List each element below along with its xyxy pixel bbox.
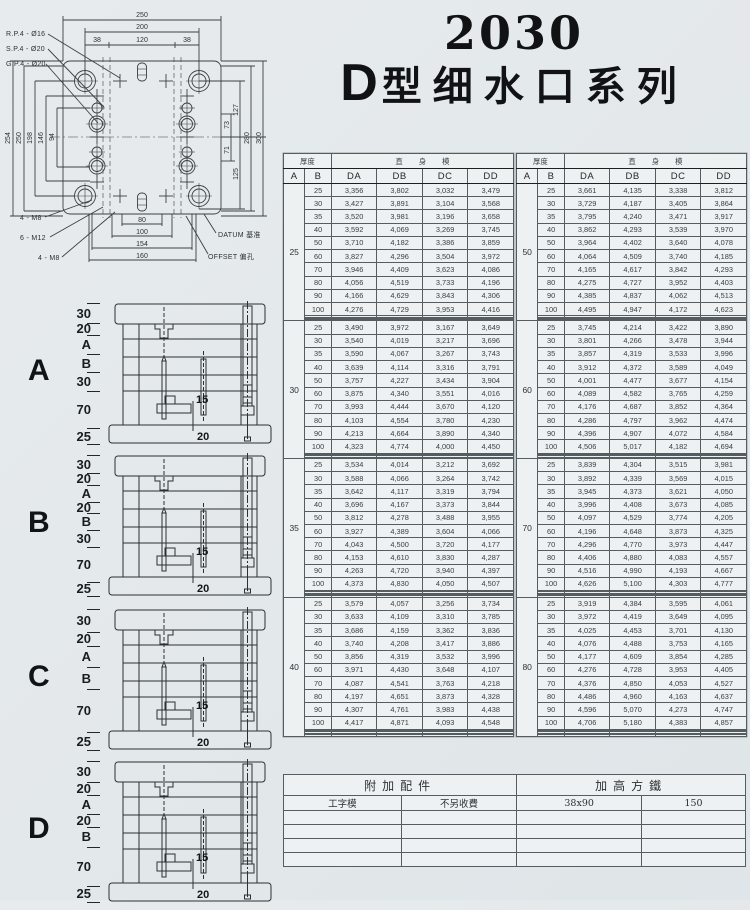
spec-cell xyxy=(284,811,402,825)
spec-cell: 3,515 xyxy=(655,458,701,471)
layer-dim-label: 30 xyxy=(56,530,100,547)
spec-cell: 4,286 xyxy=(564,413,610,426)
spec-cell: 4,474 xyxy=(701,413,747,426)
spec-cell: 3,745 xyxy=(468,223,514,236)
spec-cell: 3,319 xyxy=(422,485,468,498)
spec-cell: 4,319 xyxy=(377,650,423,663)
spec-cell: 4,056 xyxy=(331,276,377,289)
layer-dim-label: 20 xyxy=(56,473,100,484)
spec-cell: 3,972 xyxy=(377,321,423,334)
spec-cell: 3,167 xyxy=(422,321,468,334)
spec-cell: 3,589 xyxy=(655,361,701,374)
spec-cell: 3,639 xyxy=(331,361,377,374)
spec-cell: 4,066 xyxy=(377,472,423,485)
spec-cell: 3,904 xyxy=(468,374,514,387)
layer-dim-label: 70 xyxy=(56,391,100,428)
spec-cell: 3,532 xyxy=(422,650,468,663)
thickness-a-value: 40 xyxy=(284,597,305,736)
spec-cell: 40 xyxy=(305,223,331,236)
spec-cell: 4,727 xyxy=(610,276,656,289)
spec-cell: 100 xyxy=(538,716,564,729)
spec-cell: 4,196 xyxy=(564,524,610,537)
layer-dim-label: B xyxy=(56,827,100,847)
layer-dims: 3020AB307025 xyxy=(56,304,100,444)
spec-row: 503,8564,3193,5323,996 xyxy=(284,650,514,663)
inner-dim-15: 15 xyxy=(196,700,208,712)
spec-cell: 90 xyxy=(538,564,564,577)
spec-cell: 4,208 xyxy=(377,637,423,650)
spec-cell: 4,417 xyxy=(331,716,377,729)
spec-row: 604,0894,5823,7654,259 xyxy=(517,387,747,400)
spec-row: 403,6964,1673,3733,844 xyxy=(284,498,514,511)
spec-cell: 25 xyxy=(305,184,331,197)
spec-cell xyxy=(401,811,517,825)
accessory-value-row: 工字模不另收費38x90150 xyxy=(284,796,746,811)
spec-row: 1004,3734,8304,0504,507 xyxy=(284,577,514,590)
spec-cell: 4,373 xyxy=(610,485,656,498)
spec-table-left: 厚度直身模ABDADBDCDD25253,3563,8023,0323,4793… xyxy=(283,153,514,737)
layer-dim-label: 25 xyxy=(56,582,100,596)
spec-cell: 40 xyxy=(538,637,564,650)
spec-cell: 3,981 xyxy=(377,210,423,223)
spec-cell: 4,408 xyxy=(610,498,656,511)
dim-127: 127 xyxy=(233,104,240,116)
spec-row: 353,7954,2403,4713,917 xyxy=(517,210,747,223)
spec-cell: 3,972 xyxy=(564,610,610,623)
spec-cell: 4,340 xyxy=(468,427,514,440)
spec-cell: 70 xyxy=(305,263,331,276)
spec-cell: 4,049 xyxy=(701,361,747,374)
spec-cell: 3,791 xyxy=(468,361,514,374)
spec-cell: 3,588 xyxy=(331,472,377,485)
spec-cell: 3,551 xyxy=(422,387,468,400)
spec-cell: 3,568 xyxy=(468,197,514,210)
spec-cell: 4,176 xyxy=(564,400,610,413)
spec-cell: 4,293 xyxy=(701,263,747,276)
spec-cell: 3,196 xyxy=(422,210,468,223)
spec-row: 904,1664,6293,8434,306 xyxy=(284,289,514,302)
spec-row: 353,5203,9813,1963,658 xyxy=(284,210,514,223)
spec-cell: 3,785 xyxy=(468,610,514,623)
spec-cell: 3,886 xyxy=(468,637,514,650)
series-chinese-name: 型细水口系列 xyxy=(382,65,688,109)
spec-cell: 3,774 xyxy=(655,511,701,524)
spec-row: 703,9934,4443,6704,120 xyxy=(284,400,514,413)
dim-250-v: 250 xyxy=(16,132,23,144)
spec-table-right-wrap: 厚度直身模ABDADBDCDD50253,6614,1353,3383,8123… xyxy=(516,153,747,737)
thickness-header: 厚度 xyxy=(284,154,332,169)
spec-row: 1004,2764,7293,9534,416 xyxy=(284,302,514,315)
spec-cell xyxy=(564,735,610,737)
spec-cell: 4,276 xyxy=(331,302,377,315)
spec-cell: 100 xyxy=(538,440,564,453)
spec-cell: 4,166 xyxy=(331,289,377,302)
layer-dim-label: 20 xyxy=(56,814,100,827)
accessory-table: 附加配件加高方鐵工字模不另收費38x90150 xyxy=(283,774,746,867)
plate-drawing-svg: 250 200 38 120 38 254 250 198 146 94 73 … xyxy=(0,4,283,272)
spec-cell: 3,973 xyxy=(655,538,701,551)
spec-cell xyxy=(655,735,701,737)
spec-cell: 4,720 xyxy=(377,564,423,577)
spec-cell: 4,609 xyxy=(610,650,656,663)
spec-cell: 4,097 xyxy=(564,511,610,524)
spec-cell: 4,240 xyxy=(610,210,656,223)
spec-row: 80253,9194,3843,5954,061 xyxy=(517,597,747,610)
spec-cell: DD xyxy=(701,169,747,184)
spec-cell: 3,780 xyxy=(422,413,468,426)
inner-dim-20: 20 xyxy=(197,889,209,901)
spec-cell: 4,278 xyxy=(377,511,423,524)
spec-cell: 30 xyxy=(538,334,564,347)
inner-dim-20: 20 xyxy=(197,583,209,595)
spec-cell: DB xyxy=(377,169,423,184)
spec-row: 503,9644,4023,6404,078 xyxy=(517,236,747,249)
layer-dim-label: 30 xyxy=(56,372,100,391)
plate-top-view-drawing: 250 200 38 120 38 254 250 198 146 94 73 … xyxy=(0,4,283,272)
spec-row: 303,5884,0663,2643,742 xyxy=(284,472,514,485)
dim-80: 80 xyxy=(138,217,146,224)
spec-cell: 3,104 xyxy=(422,197,468,210)
mold-drawing-holder: 15 20 xyxy=(102,759,278,905)
bolt-label-m8b: 4 - M8 xyxy=(38,255,60,262)
bolt-label-m8a: 4 - M8 xyxy=(20,215,42,222)
spec-cell: 4,541 xyxy=(377,676,423,689)
spec-cell: 3,490 xyxy=(331,321,377,334)
spec-cell: 4,548 xyxy=(468,716,514,729)
spec-cell: 4,409 xyxy=(377,263,423,276)
layer-dim-label: 70 xyxy=(56,547,100,581)
layer-dim-label: 25 xyxy=(56,732,100,750)
spec-row: 70253,8394,3043,5153,981 xyxy=(517,458,747,471)
spec-cell: 4,154 xyxy=(701,374,747,387)
thickness-a-value: 70 xyxy=(517,458,538,597)
spec-cell: 4,729 xyxy=(377,302,423,315)
spec-header-row: 厚度直身模 xyxy=(517,154,747,169)
spec-cell: 3,604 xyxy=(422,524,468,537)
spec-cell: 4,025 xyxy=(564,624,610,637)
spec-cell: 3,802 xyxy=(377,184,423,197)
spec-row: 804,1034,5543,7804,230 xyxy=(284,413,514,426)
spec-cell: 5,100 xyxy=(610,577,656,590)
datum-label: DATUM 基准 xyxy=(218,230,261,239)
spec-cell: 3,801 xyxy=(564,334,610,347)
spec-cell xyxy=(468,735,514,737)
spec-cell: 3,892 xyxy=(564,472,610,485)
spec-cell: 4,285 xyxy=(701,650,747,663)
spec-row: 303,9724,4193,6494,095 xyxy=(517,610,747,623)
spec-cell: 3,945 xyxy=(564,485,610,498)
spec-cell: 3,996 xyxy=(701,347,747,360)
layer-dim-label: 70 xyxy=(56,689,100,732)
layer-dim-label: B xyxy=(56,667,100,689)
spec-row: 404,0764,4883,7534,165 xyxy=(517,637,747,650)
straight-mold-header: 直身模 xyxy=(564,154,746,169)
spec-cell: 3,720 xyxy=(422,538,468,551)
spec-cell: 4,797 xyxy=(610,413,656,426)
accessory-header-row: 附加配件加高方鐵 xyxy=(284,775,746,796)
spec-cell xyxy=(642,811,746,825)
spec-cell: 3,633 xyxy=(331,610,377,623)
spec-cell: 4,447 xyxy=(701,538,747,551)
spec-cell: 4,163 xyxy=(655,690,701,703)
spec-cell: 4,193 xyxy=(655,564,701,577)
spec-cell: 30 xyxy=(538,610,564,623)
spec-cell: 30 xyxy=(305,334,331,347)
spec-cell xyxy=(642,839,746,853)
spec-cell: 100 xyxy=(305,440,331,453)
spec-cell: 4,273 xyxy=(655,703,701,716)
spec-cell: 工字模 xyxy=(284,796,402,811)
spec-cell: 80 xyxy=(305,551,331,564)
inner-dim-15: 15 xyxy=(196,394,208,406)
spec-cell: 40 xyxy=(538,498,564,511)
spec-row: 303,8924,3393,5694,015 xyxy=(517,472,747,485)
spec-row: 504,0014,4773,6774,154 xyxy=(517,374,747,387)
spec-row: 354,0254,4533,7014,130 xyxy=(517,624,747,637)
spec-cell: 4,187 xyxy=(610,197,656,210)
spec-row: 904,5965,0704,2734,747 xyxy=(517,703,747,716)
spec-cell: 3,765 xyxy=(655,387,701,400)
spec-cell: 3,212 xyxy=(422,458,468,471)
spec-cell: 80 xyxy=(538,690,564,703)
spec-cell: 3,310 xyxy=(422,610,468,623)
thickness-a-value: 30 xyxy=(284,321,305,458)
spec-cell: 4,135 xyxy=(610,184,656,197)
mold-cross-section-drawing: 15 20 xyxy=(102,301,278,447)
spec-cell: 3,478 xyxy=(655,334,701,347)
spec-cell: 38x90 xyxy=(517,796,642,811)
spec-cell: 4,069 xyxy=(377,223,423,236)
spec-row: 704,2964,7703,9734,447 xyxy=(517,538,747,551)
spec-cell: 3,812 xyxy=(331,511,377,524)
spec-cell xyxy=(642,825,746,839)
spec-cell: 3,742 xyxy=(468,472,514,485)
dim-100: 100 xyxy=(136,229,148,236)
spec-row: 1004,4954,9474,1724,623 xyxy=(517,302,747,315)
spec-cell: 35 xyxy=(538,624,564,637)
dim-94: 94 xyxy=(49,133,56,141)
spec-cell: 4,509 xyxy=(610,250,656,263)
spec-cell: B xyxy=(538,169,564,184)
type-letter: B xyxy=(28,506,50,540)
spec-cell: 30 xyxy=(538,197,564,210)
spec-cell xyxy=(377,735,423,737)
spec-cell: 3,338 xyxy=(655,184,701,197)
spec-row: 804,1974,6513,8734,328 xyxy=(284,690,514,703)
spec-cell: 70 xyxy=(305,400,331,413)
spec-cell: 3,917 xyxy=(701,210,747,223)
spec-row: 303,4273,8913,1043,568 xyxy=(284,197,514,210)
spec-row: 504,0974,5293,7744,205 xyxy=(517,511,747,524)
spec-cell: 3,812 xyxy=(701,184,747,197)
spec-cell: 100 xyxy=(305,577,331,590)
thickness-header: 厚度 xyxy=(517,154,565,169)
spec-cell: 3,763 xyxy=(422,676,468,689)
spec-cell: 100 xyxy=(305,716,331,729)
spec-cell xyxy=(305,735,331,737)
spec-cell: 3,946 xyxy=(331,263,377,276)
spec-cell: 4,177 xyxy=(564,650,610,663)
spec-cell: 80 xyxy=(538,551,564,564)
spec-row: 704,1764,6873,8524,364 xyxy=(517,400,747,413)
spec-row: 504,1774,6093,8544,285 xyxy=(517,650,747,663)
layer-dim-label: B xyxy=(56,354,100,373)
spec-cell: 4,306 xyxy=(468,289,514,302)
spec-cell xyxy=(701,735,747,737)
spec-cell: 3,642 xyxy=(331,485,377,498)
spec-cell: 3,962 xyxy=(655,413,701,426)
spec-cell: 3,362 xyxy=(422,624,468,637)
spec-cell: 4,117 xyxy=(377,485,423,498)
dim-160: 160 xyxy=(136,253,148,260)
spec-cell: 4,728 xyxy=(610,663,656,676)
spec-row: 904,3074,7613,9834,438 xyxy=(284,703,514,716)
spec-cell: 4,637 xyxy=(701,690,747,703)
spec-cell: 4,529 xyxy=(610,511,656,524)
spec-cell: 4,960 xyxy=(610,690,656,703)
spec-cell: 4,373 xyxy=(331,577,377,590)
spec-cell: 4,304 xyxy=(610,458,656,471)
spec-cell xyxy=(401,853,517,867)
layer-dim-label: 20 xyxy=(56,632,100,646)
spec-cell: 3,955 xyxy=(468,511,514,524)
spec-cell: 4,402 xyxy=(610,236,656,249)
spec-cell: 3,729 xyxy=(564,197,610,210)
spec-cell: 50 xyxy=(305,511,331,524)
spec-cell: 4,182 xyxy=(377,236,423,249)
layer-dim-label: 30 xyxy=(56,610,100,632)
spec-cell: 4,629 xyxy=(377,289,423,302)
spec-cell: 60 xyxy=(538,524,564,537)
spec-cell: 4,623 xyxy=(701,302,747,315)
spec-cell: DD xyxy=(468,169,514,184)
spec-cell: 4,095 xyxy=(701,610,747,623)
spec-cell xyxy=(331,735,377,737)
spec-row: 804,2864,7973,9624,474 xyxy=(517,413,747,426)
dim-38-left: 38 xyxy=(93,37,101,44)
spec-cell: 3,875 xyxy=(331,387,377,400)
spec-cell: 3,927 xyxy=(331,524,377,537)
spec-cell: 4,159 xyxy=(377,624,423,637)
spec-cell: 4,516 xyxy=(564,564,610,577)
spec-cell: 25 xyxy=(305,597,331,610)
thickness-a-value: 50 xyxy=(517,184,538,321)
spec-cell: 4,185 xyxy=(701,250,747,263)
layer-dim-label: 20 xyxy=(56,323,100,335)
spec-cell: 3,267 xyxy=(422,347,468,360)
spec-cell: 3,734 xyxy=(468,597,514,610)
spec-cell: 30 xyxy=(305,610,331,623)
spec-cell: 3,859 xyxy=(468,236,514,249)
layer-dim-label: 20 xyxy=(56,782,100,795)
spec-cell xyxy=(642,853,746,867)
spec-cell: 3,844 xyxy=(468,498,514,511)
spec-cell: 4,259 xyxy=(701,387,747,400)
spec-cell: 4,057 xyxy=(377,597,423,610)
layer-dim-label: A xyxy=(56,795,100,815)
spec-cell: 3,912 xyxy=(564,361,610,374)
spec-row: 403,8624,2933,5393,970 xyxy=(517,223,747,236)
spec-cell: 4,830 xyxy=(377,577,423,590)
series-name: D 型细水口系列 xyxy=(288,57,740,109)
spec-row: 603,9274,3893,6044,066 xyxy=(284,524,514,537)
spec-cell: 3,623 xyxy=(422,263,468,276)
spec-cell: 3,740 xyxy=(655,250,701,263)
spec-cell: 5,180 xyxy=(610,716,656,729)
spec-row: 804,2754,7273,9524,403 xyxy=(517,276,747,289)
spec-row: 353,6864,1593,3623,836 xyxy=(284,624,514,637)
spec-cell: 3,864 xyxy=(701,197,747,210)
dim-71: 71 xyxy=(224,146,231,154)
spec-cell: 4,015 xyxy=(701,472,747,485)
spec-row: 904,3964,9074,0724,584 xyxy=(517,427,747,440)
mold-type-section-C: C3020AB7025 15 20 xyxy=(6,606,278,754)
spec-cell: 3,964 xyxy=(564,236,610,249)
mold-cross-section-drawing: 15 20 xyxy=(102,759,278,905)
dim-38-right: 38 xyxy=(183,37,191,44)
dim-73: 73 xyxy=(224,121,231,129)
spec-cell: 4,416 xyxy=(468,302,514,315)
spec-cell: 3,827 xyxy=(331,250,377,263)
spec-row: 703,9464,4093,6234,086 xyxy=(284,263,514,276)
spec-cell: 4,450 xyxy=(468,440,514,453)
thickness-a-value: 80 xyxy=(517,597,538,736)
spec-cell: 40 xyxy=(305,637,331,650)
spec-cell: 40 xyxy=(305,361,331,374)
spec-row: 403,6394,1143,3163,791 xyxy=(284,361,514,374)
spec-cell: 4,083 xyxy=(655,551,701,564)
spec-cell: 3,857 xyxy=(564,347,610,360)
spec-cell: 3,856 xyxy=(331,650,377,663)
spec-cell: 4,444 xyxy=(377,400,423,413)
spec-cell: 4,107 xyxy=(468,663,514,676)
spec-cell: 4,064 xyxy=(564,250,610,263)
spec-cell: 60 xyxy=(305,663,331,676)
spec-cell: 4,507 xyxy=(468,577,514,590)
spec-cell: 3,534 xyxy=(331,458,377,471)
spec-cell: 4,213 xyxy=(331,427,377,440)
type-letter: D xyxy=(28,812,50,846)
dim-146: 146 xyxy=(38,132,45,144)
type-letter: C xyxy=(28,660,50,694)
spec-cell: 3,595 xyxy=(655,597,701,610)
spec-cell: 3,753 xyxy=(655,637,701,650)
spec-cell: 4,777 xyxy=(701,577,747,590)
spec-empty-row xyxy=(284,735,514,737)
spec-cell: 50 xyxy=(305,650,331,663)
spec-cell xyxy=(517,839,642,853)
spec-cell: 3,590 xyxy=(331,347,377,360)
spec-row: 403,5924,0693,2693,745 xyxy=(284,223,514,236)
spec-row: 904,2134,6643,8904,340 xyxy=(284,427,514,440)
layer-dim-label: 70 xyxy=(56,847,100,886)
mold-drawing-holder: 15 20 xyxy=(102,607,278,753)
spec-cell: 4,384 xyxy=(610,597,656,610)
spec-cell: 80 xyxy=(305,413,331,426)
spec-cell xyxy=(517,811,642,825)
spec-cell: DC xyxy=(655,169,701,184)
spec-cell: 4,328 xyxy=(468,690,514,703)
dim-250: 250 xyxy=(136,12,148,19)
spec-cell: 4,837 xyxy=(610,289,656,302)
layer-dim-label: 20 xyxy=(56,502,100,513)
spec-cell: 30 xyxy=(538,472,564,485)
spec-cell: 3,488 xyxy=(422,511,468,524)
spec-cell: 3,983 xyxy=(422,703,468,716)
spec-cell: 50 xyxy=(538,374,564,387)
spec-cell: DC xyxy=(422,169,468,184)
spec-cell: 3,701 xyxy=(655,624,701,637)
